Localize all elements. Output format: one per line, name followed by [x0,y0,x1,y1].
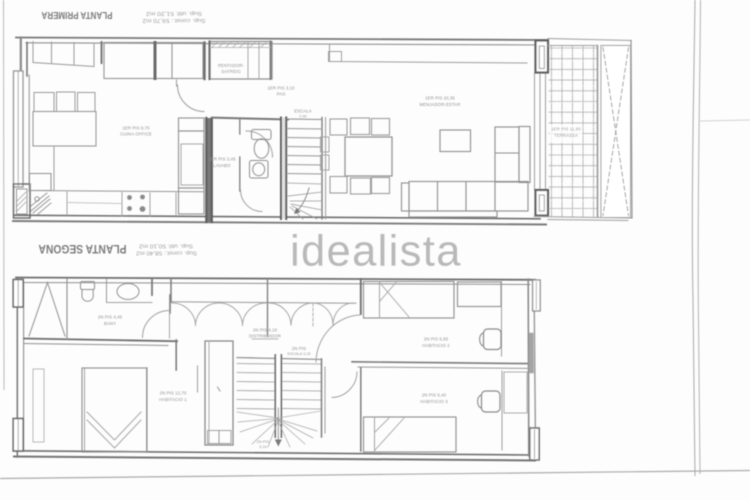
svg-text:1ER PIS 3,10: 1ER PIS 3,10 [267,86,295,91]
svg-text:MENJADOR-ESTAR: MENJADOR-ESTAR [420,102,461,107]
svg-text:1ER PIS 11,60: 1ER PIS 11,60 [551,127,581,132]
svg-text:1ER PIS 9,70: 1ER PIS 9,70 [122,126,150,131]
svg-text:1ER PIS 20,35: 1ER PIS 20,35 [425,96,455,101]
svg-text:TERRASSA: TERRASSA [554,133,578,138]
svg-text:DISTRIBUIDOR: DISTRIBUIDOR [249,334,281,339]
svg-text:PLANTA SEGONA: PLANTA SEGONA [39,242,127,254]
svg-text:2N PIS 6,55: 2N PIS 6,55 [424,337,449,342]
svg-text:CUINA-OFFICE: CUINA-OFFICE [120,132,152,137]
svg-text:BANY: BANY [104,321,116,326]
svg-text:HABITACIO 3: HABITACIO 3 [420,399,448,404]
svg-text:HABITACIO 2: HABITACIO 2 [422,343,450,348]
svg-text:ESCALA 3,15: ESCALA 3,15 [287,352,310,356]
svg-text:PAS: PAS [277,92,286,97]
svg-text:2N PIS: 2N PIS [257,440,270,444]
svg-text:2N PIS 6,40: 2N PIS 6,40 [422,393,447,398]
svg-text:PLANTA PRIMERA: PLANTA PRIMERA [41,9,112,21]
svg-text:2,90: 2,90 [299,115,306,119]
svg-text:Sup. const.: 58,40 m2: Sup. const.: 58,40 m2 [136,250,197,256]
svg-text:2N PIS 4,10: 2N PIS 4,10 [253,328,278,333]
svg-text:idealista: idealista [290,228,462,276]
svg-text:Sup. const.: 59,70 m2: Sup. const.: 59,70 m2 [143,17,206,23]
svg-text:1ER PIS 3,45: 1ER PIS 3,45 [208,157,236,162]
svg-text:Sup. util: 51,20 m2: Sup. util: 51,20 m2 [146,10,202,16]
svg-text:2N PIS: 2N PIS [292,346,306,351]
svg-text:Sup. util: 50,10 m2: Sup. util: 50,10 m2 [139,243,193,249]
svg-text:HABITACIO 1: HABITACIO 1 [159,397,187,402]
svg-text:RENTADOR-: RENTADOR- [218,63,245,68]
svg-text:SAFREIG: SAFREIG [221,69,241,74]
svg-text:2N PIS 4,45: 2N PIS 4,45 [98,315,123,320]
svg-text:LAVABO: LAVABO [213,163,231,168]
svg-text:ESCALA: ESCALA [294,109,312,114]
svg-text:3,10: 3,10 [259,445,267,449]
svg-text:2N PIS 12,70: 2N PIS 12,70 [160,391,187,396]
